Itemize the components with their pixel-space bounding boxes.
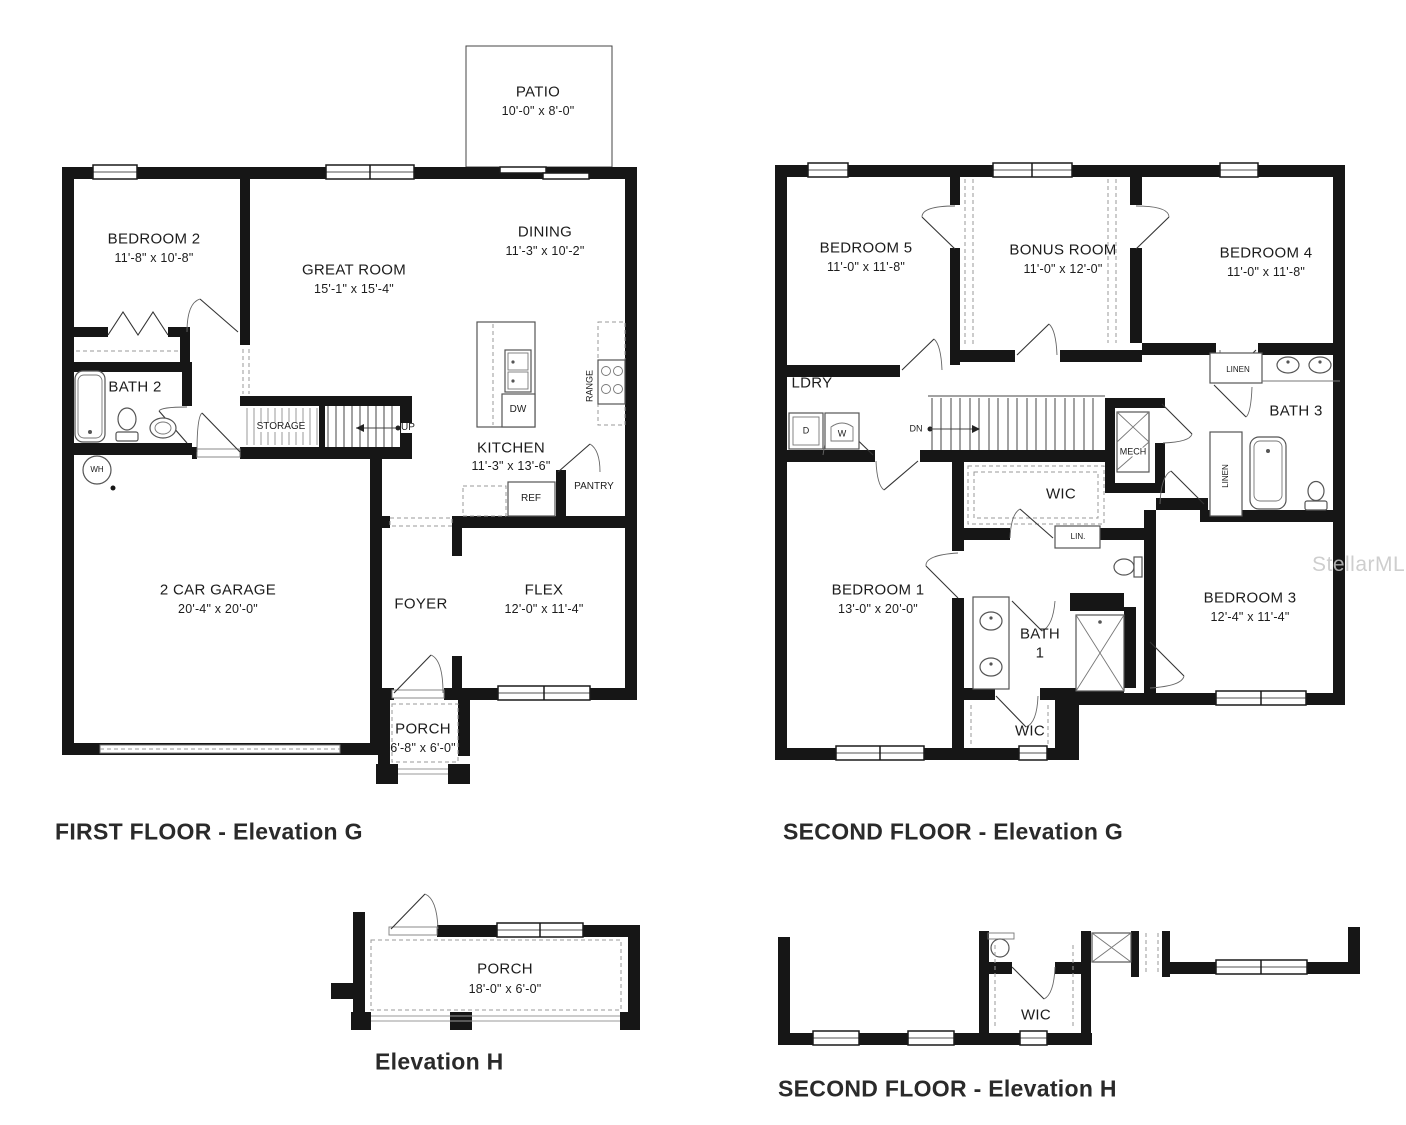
room-dims-bedroom3: 12'-4" x 11'-4"	[1211, 611, 1290, 624]
window	[808, 163, 848, 177]
label-mech: MECH	[1120, 448, 1147, 457]
room-dims-flex: 12'-0" x 11'-4"	[505, 603, 584, 616]
room-label-wic-lower: WIC	[1015, 724, 1045, 739]
window	[498, 686, 590, 700]
stellar-mls-watermark: StellarMLS	[1312, 553, 1406, 577]
elevation-h-window	[497, 923, 583, 937]
floor-plan-image: PATIO 10'-0" x 8'-0" BEDROOM 2 11'-8" x …	[0, 0, 1406, 1125]
room-dims-porch-h: 18'-0" x 6'-0"	[469, 983, 542, 996]
label-washer: W	[838, 430, 847, 439]
window	[93, 165, 137, 179]
room-label-foyer: FOYER	[394, 597, 447, 612]
room-dims-porch: 6'-8" x 6'-0"	[390, 742, 456, 755]
window	[326, 165, 414, 179]
label-water-heater: WH	[90, 466, 103, 474]
label-dn: DN	[910, 425, 923, 434]
label-range: RANGE	[586, 370, 595, 402]
room-label-bath1-num: 1	[1036, 646, 1045, 661]
second-floor-stairs	[928, 396, 1106, 450]
room-label-bedroom2: BEDROOM 2	[108, 232, 201, 247]
label-dryer: D	[803, 427, 810, 436]
label-refrigerator: REF	[521, 494, 541, 504]
room-label-bedroom4: BEDROOM 4	[1220, 246, 1313, 261]
room-label-bath1: BATH	[1020, 627, 1060, 642]
room-label-kitchen: KITCHEN	[477, 441, 545, 456]
room-dims-bedroom1: 13'-0" x 20'-0"	[838, 603, 918, 616]
room-dims-bedroom4: 11'-0" x 11'-8"	[1227, 266, 1305, 279]
label-pantry: PANTRY	[574, 482, 614, 492]
porch-door-threshold	[389, 927, 437, 935]
elevation-h-dashed	[371, 940, 621, 1021]
window	[1020, 1031, 1047, 1045]
label-linen-top: LINEN	[1226, 366, 1250, 374]
first-floor-dashed	[76, 349, 506, 774]
room-label-great-room: GREAT ROOM	[302, 263, 406, 278]
window	[1216, 960, 1307, 974]
front-door-threshold	[392, 690, 444, 698]
window	[908, 1031, 954, 1045]
room-label-bonus: BONUS ROOM	[1009, 243, 1116, 258]
room-dims-dining: 11'-3" x 10'-2"	[506, 245, 585, 258]
room-dims-great-room: 15'-1" x 15'-4"	[314, 283, 394, 296]
room-label-bedroom5: BEDROOM 5	[820, 241, 913, 256]
window	[1019, 746, 1047, 760]
label-dishwasher: DW	[510, 405, 527, 415]
second-floor-h-plan	[778, 927, 1360, 1045]
garage-door	[100, 745, 340, 753]
room-dims-garage: 20'-4" x 20'-0"	[178, 603, 258, 616]
room-dims-bedroom5: 11'-0" x 11'-8"	[827, 261, 905, 274]
room-dims-kitchen: 11'-3" x 13'-6"	[472, 460, 551, 473]
caption-first-floor: FIRST FLOOR - Elevation G	[55, 819, 363, 846]
room-label-bedroom1: BEDROOM 1	[832, 583, 925, 598]
second-floor-h-walls	[778, 927, 1360, 1045]
room-label-patio: PATIO	[516, 85, 560, 100]
garage-entry-threshold	[197, 449, 240, 457]
caption-second-floor-h: SECOND FLOOR - Elevation H	[778, 1076, 1117, 1103]
caption-second-floor: SECOND FLOOR - Elevation G	[783, 819, 1123, 846]
window	[1216, 691, 1306, 705]
room-label-wic-h: WIC	[1021, 1008, 1051, 1023]
label-storage: STORAGE	[256, 422, 307, 432]
room-label-wic-upper: WIC	[1046, 487, 1076, 502]
room-dims-patio: 10'-0" x 8'-0"	[502, 105, 575, 118]
room-label-bedroom3: BEDROOM 3	[1204, 591, 1297, 606]
label-up: UP	[401, 423, 415, 433]
elevation-h-door	[391, 894, 438, 929]
window	[813, 1031, 859, 1045]
room-label-bath3: BATH 3	[1269, 404, 1322, 419]
room-label-bath2: BATH 2	[108, 380, 161, 395]
caption-elevation-h: Elevation H	[375, 1049, 504, 1076]
room-dims-bedroom2: 11'-8" x 10'-8"	[115, 252, 194, 265]
window	[993, 163, 1072, 177]
floorplan-svg	[0, 0, 1406, 1125]
room-label-garage: 2 CAR GARAGE	[160, 583, 276, 598]
first-floor-plan	[62, 46, 637, 784]
window	[836, 746, 924, 760]
room-label-dining: DINING	[518, 225, 572, 240]
window	[1220, 163, 1258, 177]
room-label-porch-h: PORCH	[477, 962, 533, 977]
room-label-porch: PORCH	[395, 722, 451, 737]
label-lin: LIN.	[1071, 533, 1086, 541]
room-label-flex: FLEX	[525, 583, 564, 598]
label-linen-side: LINEN	[1222, 464, 1230, 488]
room-label-laundry: LDRY	[792, 376, 833, 391]
room-dims-bonus: 11'-0" x 12'-0"	[1024, 263, 1103, 276]
